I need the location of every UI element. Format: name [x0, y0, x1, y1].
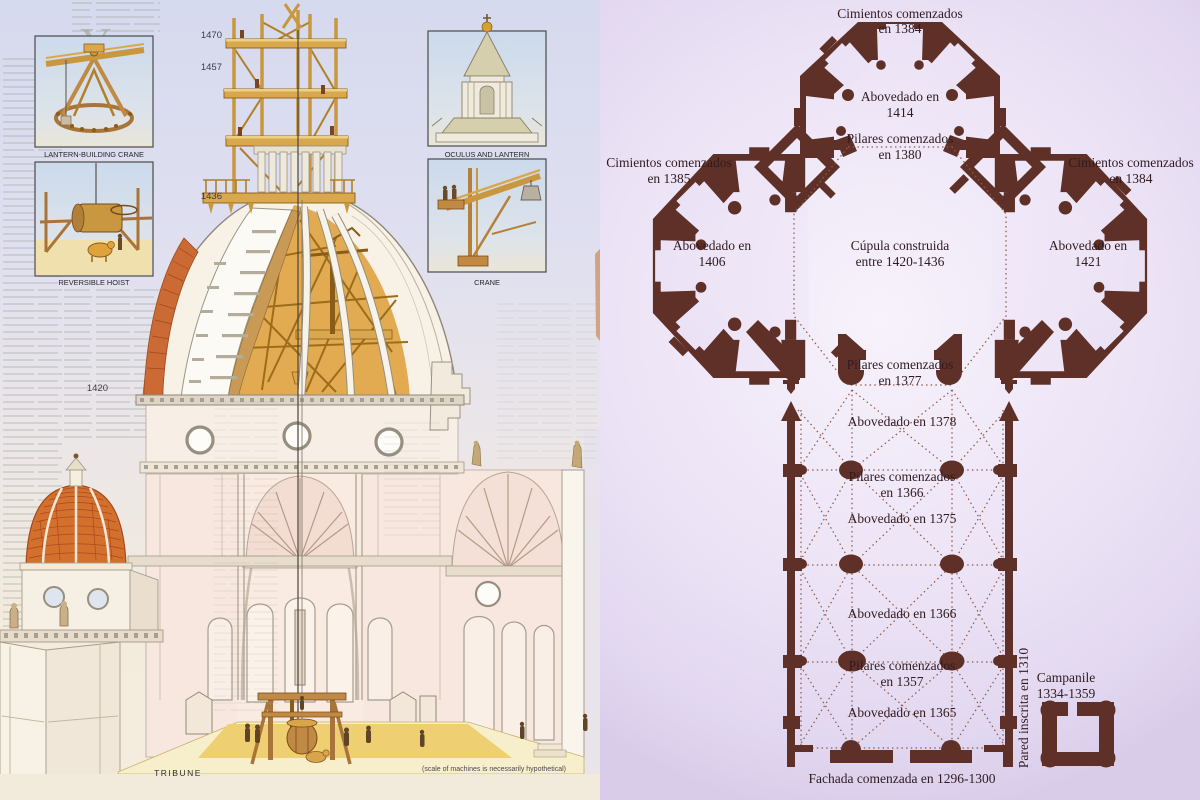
svg-text:Abovedado en 1366: Abovedado en 1366 — [848, 606, 957, 621]
svg-text:1406: 1406 — [699, 254, 726, 269]
svg-text:Pilares comenzados: Pilares comenzados — [849, 469, 956, 484]
svg-text:1457: 1457 — [201, 62, 222, 73]
svg-text:CRANE: CRANE — [474, 278, 500, 287]
svg-text:REVERSIBLE HOIST: REVERSIBLE HOIST — [58, 278, 130, 287]
svg-text:en 1384: en 1384 — [1109, 171, 1152, 186]
svg-text:en 1385: en 1385 — [647, 171, 690, 186]
svg-text:TRIBUNE: TRIBUNE — [154, 768, 202, 778]
svg-text:Cimientos comenzados: Cimientos comenzados — [606, 155, 732, 170]
svg-text:Cimientos comenzados: Cimientos comenzados — [837, 6, 963, 21]
svg-text:1470: 1470 — [201, 30, 222, 41]
svg-text:1421: 1421 — [1075, 254, 1102, 269]
svg-text:Abovedado en: Abovedado en — [1049, 238, 1128, 253]
svg-text:en 1357: en 1357 — [880, 674, 923, 689]
svg-text:Pilares comenzados: Pilares comenzados — [847, 131, 954, 146]
svg-text:1334-1359: 1334-1359 — [1037, 686, 1096, 701]
svg-text:en 1366: en 1366 — [880, 485, 923, 500]
svg-text:1436: 1436 — [201, 191, 222, 202]
svg-text:Cimientos comenzados: Cimientos comenzados — [1068, 155, 1194, 170]
svg-text:LANTERN-BUILDING CRANE: LANTERN-BUILDING CRANE — [44, 150, 144, 159]
svg-text:en 1380: en 1380 — [878, 147, 921, 162]
svg-text:Fachada comenzada en 1296-1300: Fachada comenzada en 1296-1300 — [808, 771, 995, 786]
svg-text:Abovedado en: Abovedado en — [673, 238, 752, 253]
svg-text:Campanile: Campanile — [1037, 670, 1095, 685]
svg-text:Pilares comenzados: Pilares comenzados — [847, 357, 954, 372]
svg-text:Abovedado en 1365: Abovedado en 1365 — [848, 705, 957, 720]
svg-text:1414: 1414 — [887, 105, 914, 120]
svg-text:Pilares comenzados: Pilares comenzados — [849, 658, 956, 673]
svg-text:Abovedado en 1375: Abovedado en 1375 — [848, 511, 957, 526]
svg-text:Cúpula construida: Cúpula construida — [851, 238, 950, 253]
svg-text:Pared inscrita en 1310: Pared inscrita en 1310 — [1016, 648, 1031, 769]
svg-text:1420: 1420 — [87, 383, 108, 394]
svg-text:(scale of machines is necessar: (scale of machines is necessarily hypoth… — [422, 766, 566, 773]
svg-text:en 1377: en 1377 — [878, 373, 921, 388]
svg-text:OCULUS AND LANTERN: OCULUS AND LANTERN — [445, 150, 530, 159]
svg-text:Abovedado en: Abovedado en — [861, 89, 940, 104]
svg-text:en 1384: en 1384 — [878, 21, 921, 36]
svg-text:entre 1420-1436: entre 1420-1436 — [856, 254, 945, 269]
svg-text:Abovedado en 1378: Abovedado en 1378 — [848, 414, 957, 429]
